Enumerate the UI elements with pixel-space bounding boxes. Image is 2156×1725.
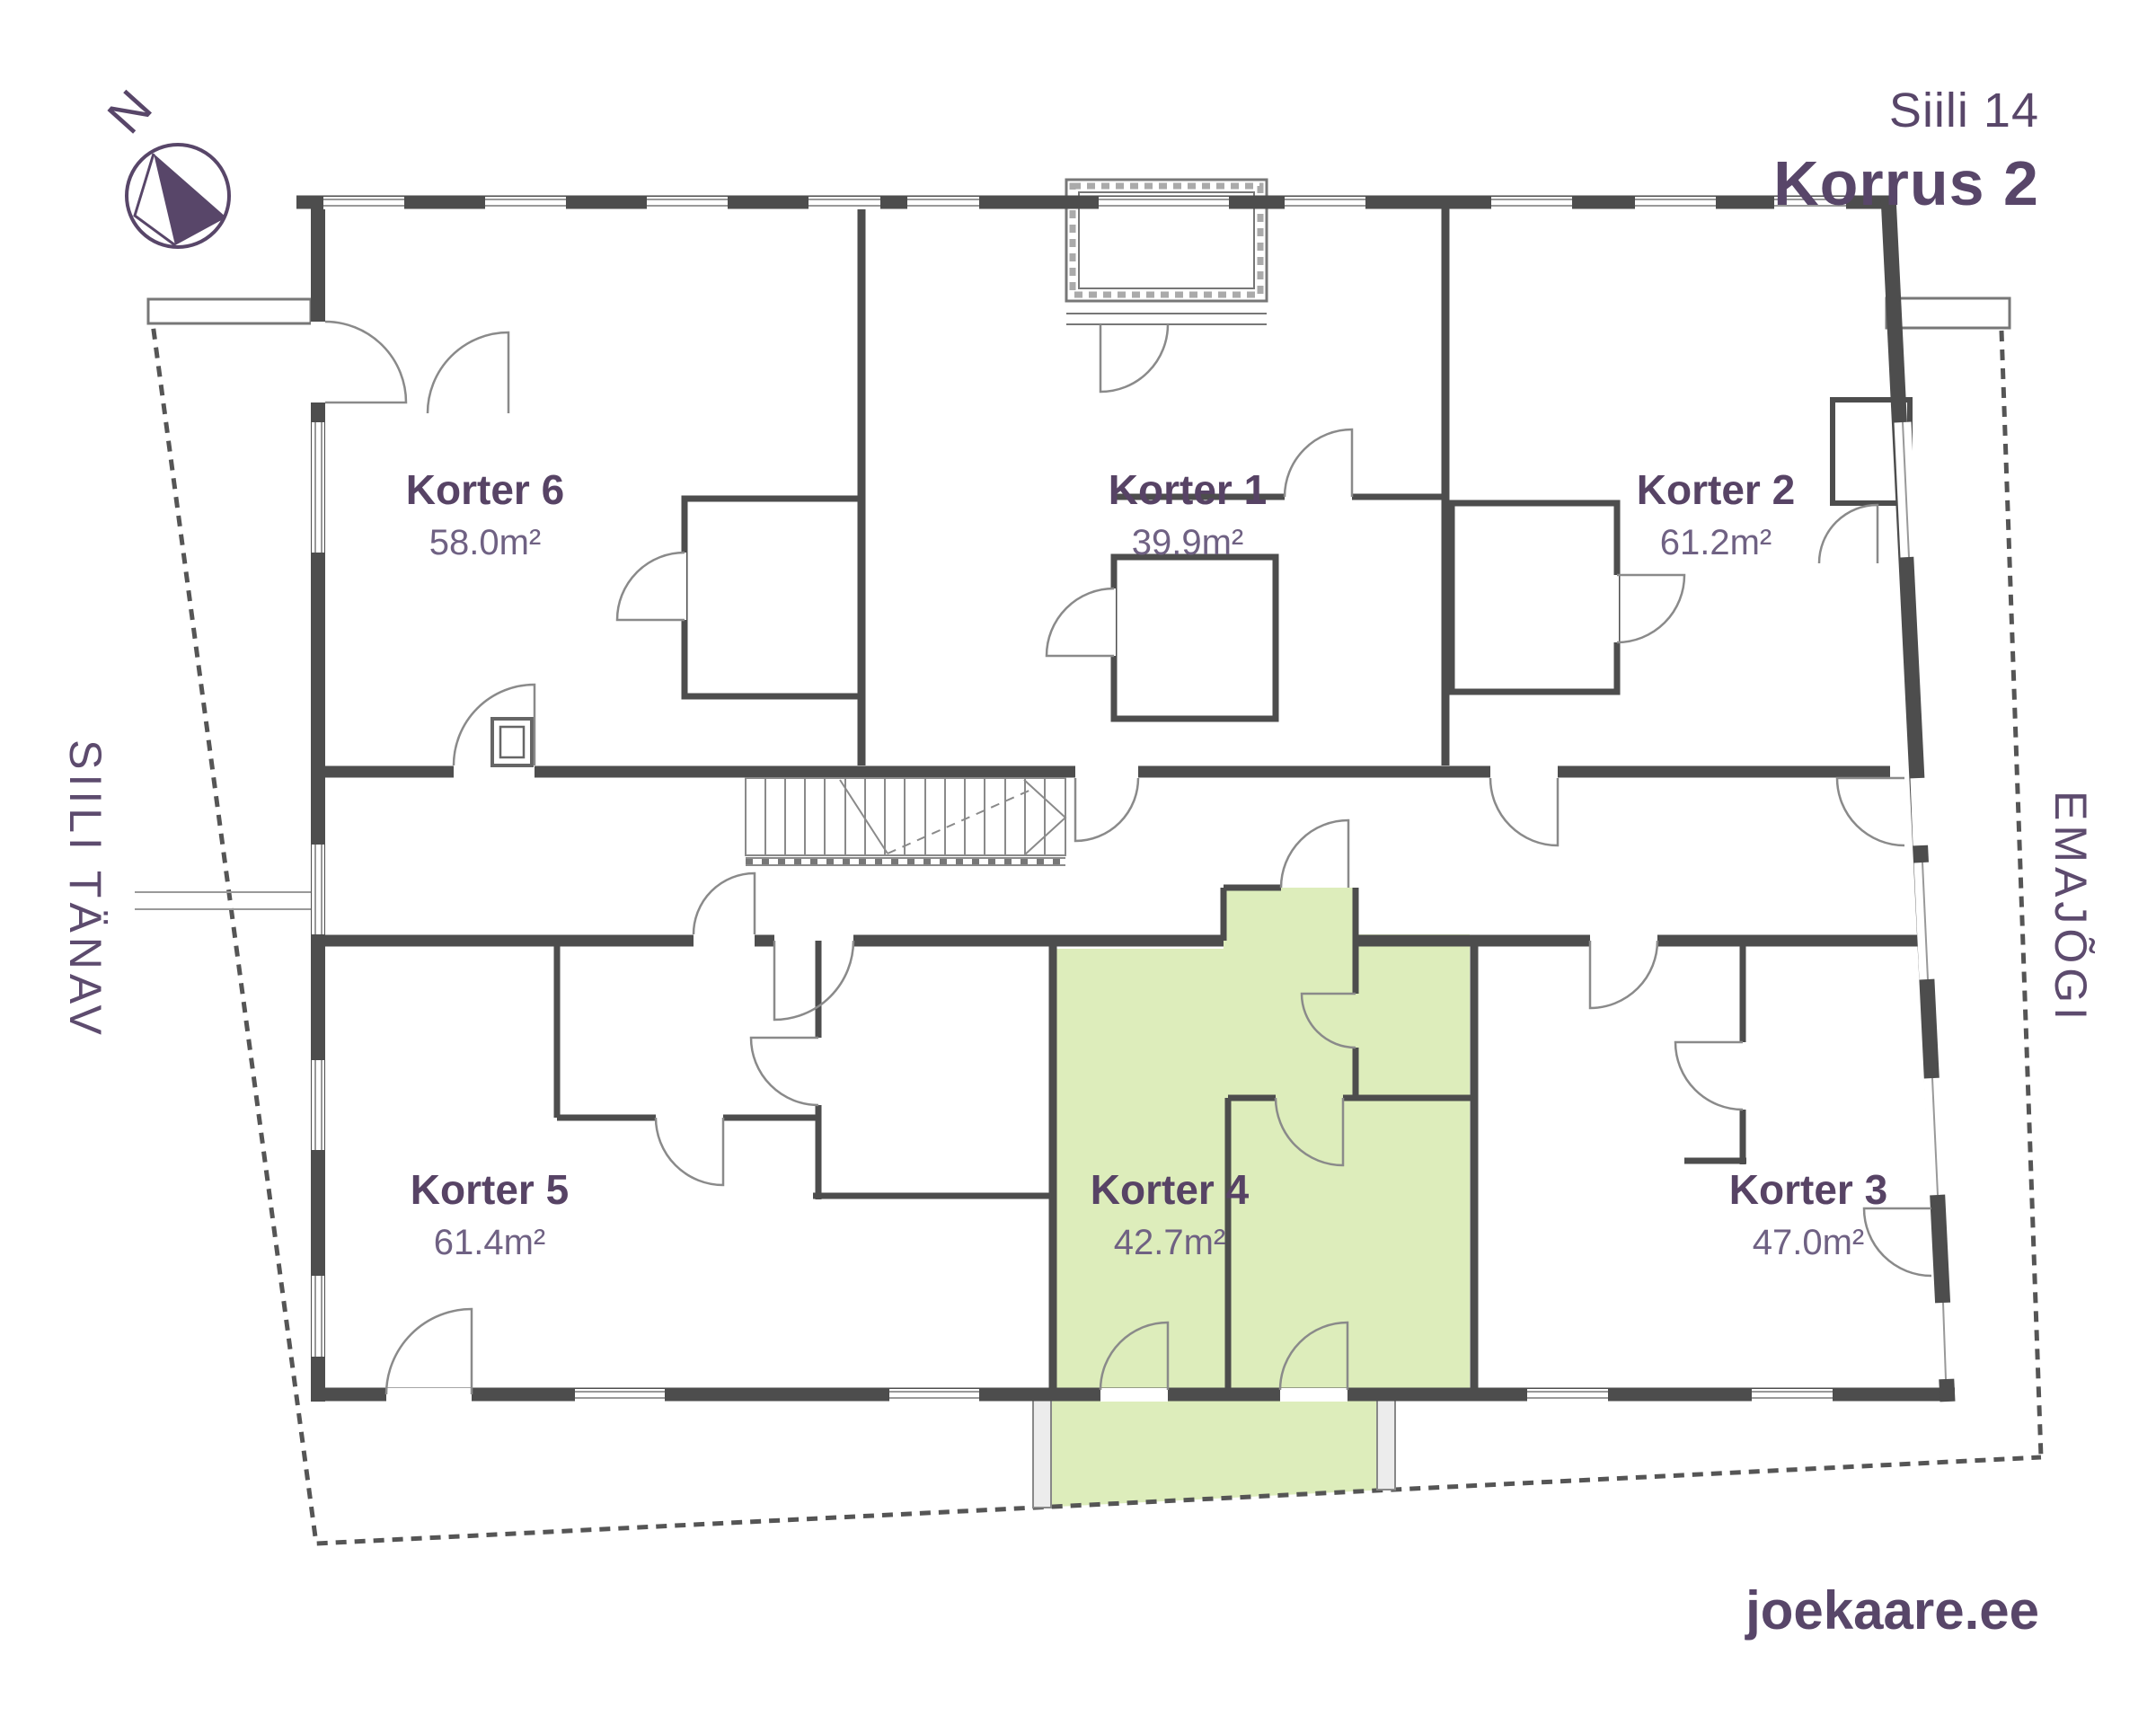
- unit-area: 58.0m²: [406, 523, 564, 563]
- unit-label-korter-6[interactable]: Korter 6 58.0m²: [406, 465, 564, 563]
- corridor-walls: [325, 772, 1928, 941]
- unit-name: Korter 3: [1729, 1165, 1887, 1214]
- street-label-right: EMAJÕGI: [2045, 791, 2097, 1024]
- unit-area: 61.4m²: [411, 1223, 569, 1263]
- title-block: Siili 14 Korrus 2: [1773, 83, 2039, 219]
- floorplan-drawing: [0, 0, 2156, 1725]
- floor-title: Korrus 2: [1773, 147, 2039, 219]
- unit-name: Korter 6: [406, 465, 564, 514]
- unit-name: Korter 2: [1637, 465, 1795, 514]
- shaft: [492, 719, 532, 765]
- staircase: [746, 778, 1065, 865]
- unit-label-korter-3[interactable]: Korter 3 47.0m²: [1729, 1165, 1887, 1263]
- unit-name: Korter 5: [411, 1165, 569, 1214]
- unit-label-korter-1[interactable]: Korter 1 39.9m²: [1109, 465, 1267, 563]
- unit-label-korter-2[interactable]: Korter 2 61.2m²: [1637, 465, 1795, 563]
- retaining-wall: [135, 892, 311, 909]
- project-title: Siili 14: [1773, 83, 2039, 138]
- unit-area: 61.2m²: [1637, 523, 1795, 563]
- unit-area: 47.0m²: [1729, 1223, 1887, 1263]
- unit-name: Korter 1: [1109, 465, 1267, 514]
- floorplan-page: Siili 14 Korrus 2 N SIILI TÄNAV EMAJÕGI …: [0, 0, 2156, 1725]
- compass-icon: [127, 145, 229, 247]
- street-label-left: SIILI TÄNAV: [59, 739, 111, 1039]
- unit-name: Korter 4: [1091, 1165, 1249, 1214]
- unit-area: 39.9m²: [1109, 523, 1267, 563]
- unit-label-korter-4[interactable]: Korter 4 42.7m²: [1091, 1165, 1249, 1263]
- unit-area: 42.7m²: [1091, 1223, 1249, 1263]
- unit-label-korter-5[interactable]: Korter 5 61.4m²: [411, 1165, 569, 1263]
- website-link[interactable]: joekaare.ee: [1745, 1579, 2039, 1641]
